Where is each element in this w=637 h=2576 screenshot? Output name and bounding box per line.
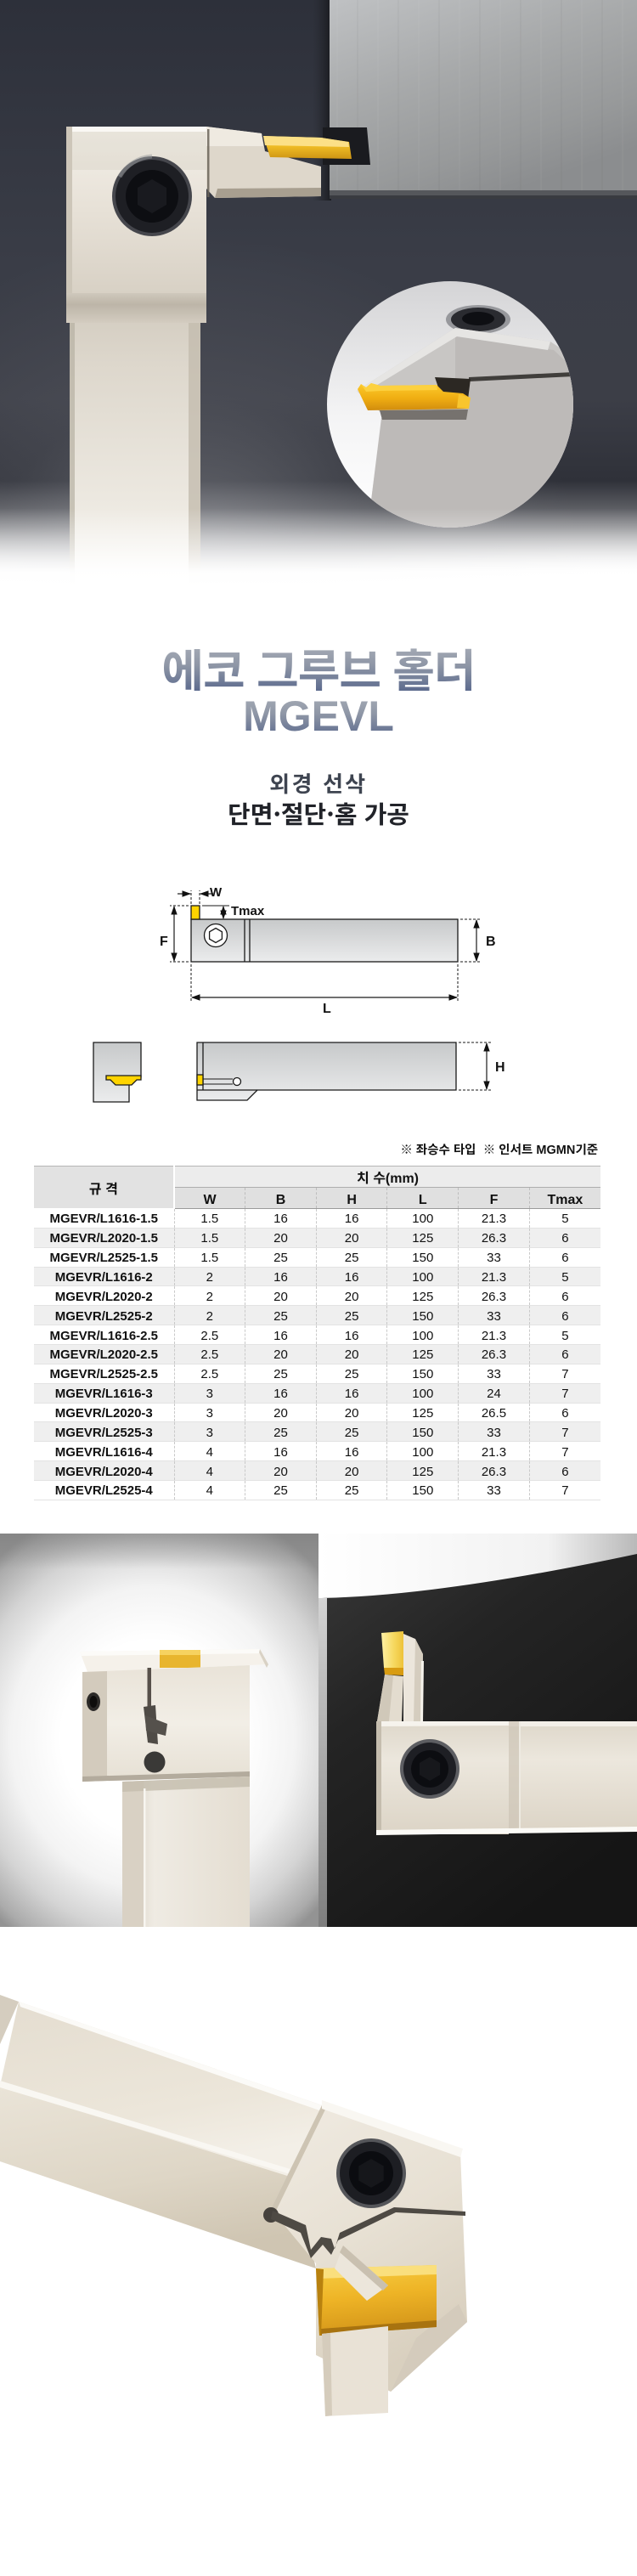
svg-text:F: F	[160, 935, 168, 949]
svg-text:Tmax: Tmax	[231, 904, 265, 918]
svg-text:W: W	[210, 885, 223, 900]
svg-text:B: B	[486, 935, 496, 949]
svg-text:H: H	[495, 1060, 505, 1075]
svg-text:L: L	[323, 1002, 331, 1016]
